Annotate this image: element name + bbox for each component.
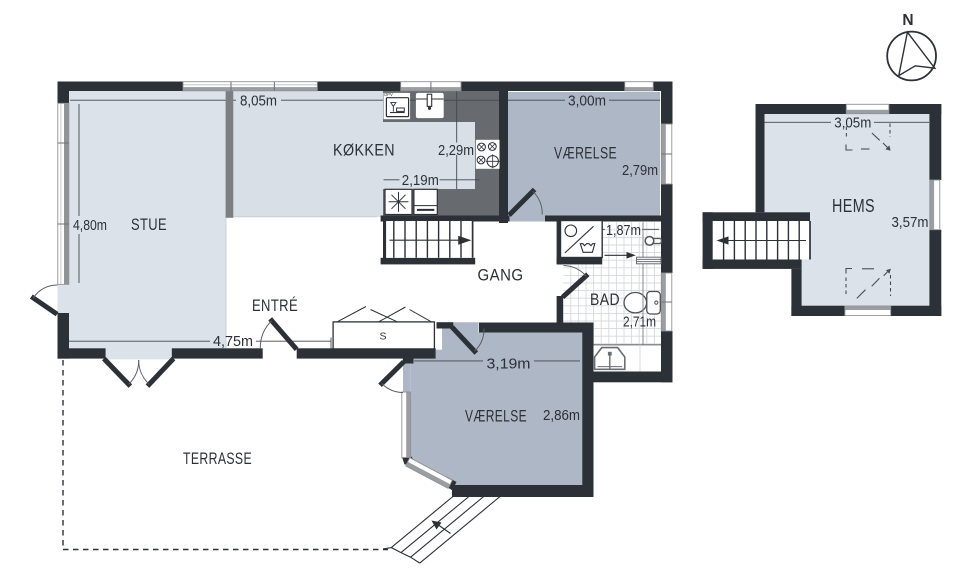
svg-text:VÆRELSE: VÆRELSE (465, 408, 527, 426)
svg-text:HEMS: HEMS (832, 196, 875, 216)
svg-text:ENTRÉ: ENTRÉ (252, 296, 298, 315)
svg-text:S: S (380, 330, 387, 342)
svg-text:4,80m: 4,80m (73, 218, 107, 234)
svg-text:3,05m: 3,05m (834, 115, 871, 131)
svg-text:VÆRELSE: VÆRELSE (554, 145, 617, 163)
svg-text:BAD: BAD (590, 291, 620, 309)
svg-text:2,29m: 2,29m (438, 143, 474, 159)
svg-text:3,00m: 3,00m (568, 93, 606, 109)
svg-text:STUE: STUE (131, 216, 167, 234)
svg-text:2,71m: 2,71m (623, 315, 656, 331)
svg-text:3,19m: 3,19m (487, 357, 531, 373)
svg-text:N: N (902, 12, 913, 29)
svg-text:2,79m: 2,79m (622, 163, 658, 179)
svg-text:TERRASSE: TERRASSE (183, 450, 252, 468)
svg-text:2,86m: 2,86m (543, 408, 580, 424)
svg-text:GANG: GANG (478, 267, 524, 285)
svg-text:8,05m: 8,05m (240, 93, 277, 109)
svg-text:1,87m: 1,87m (606, 223, 641, 239)
svg-text:4,75m: 4,75m (213, 334, 253, 350)
svg-text:3,57m: 3,57m (892, 215, 929, 231)
svg-text:OPV: OPV (384, 92, 393, 97)
svg-text:2,19m: 2,19m (402, 173, 439, 189)
svg-text:KØKKEN: KØKKEN (333, 142, 395, 160)
